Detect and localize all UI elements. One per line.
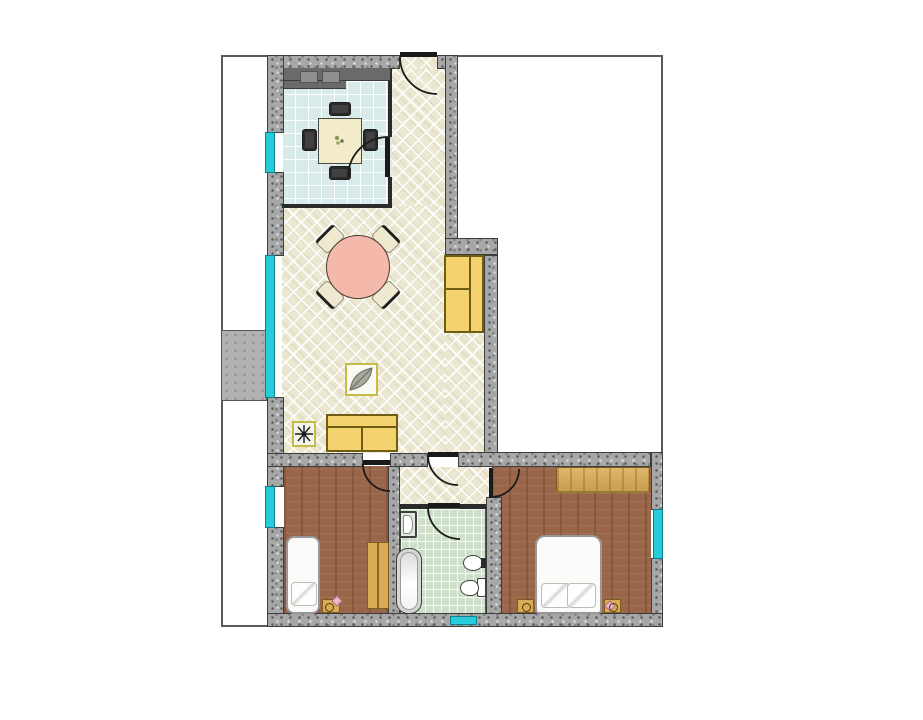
nightstand-lamp-ring	[609, 603, 618, 612]
bedroom-small-window	[265, 486, 275, 528]
cabinet	[444, 255, 484, 333]
cabinet-side-column	[471, 257, 482, 331]
bathtub-basin	[400, 552, 418, 610]
bedroom-small-wardrobe	[367, 542, 389, 609]
double-bed	[535, 535, 602, 614]
round-dining-table	[326, 235, 390, 299]
wall-east-mid	[484, 255, 498, 467]
bedroom-master-nightstand-left	[517, 599, 534, 613]
toilet-bowl	[460, 580, 479, 596]
cabinet-cell-top	[446, 257, 469, 290]
bedroom-master-nightstand-right	[604, 599, 621, 613]
inner-hallway-floor	[400, 467, 492, 507]
wall-bedrooms-top-b	[390, 453, 428, 467]
bedroom-small-nightstand	[322, 599, 340, 613]
nightstand-lamp-ring	[522, 603, 531, 612]
wall-left-4	[267, 527, 284, 627]
wall-decor-star-frame	[292, 421, 316, 447]
sofa-back	[328, 416, 396, 428]
nightstand-lamp-ring	[325, 603, 334, 612]
kitchen-table	[318, 118, 362, 164]
bedroom-master-wardrobe	[556, 467, 650, 493]
kitchen-window	[265, 132, 275, 173]
cabinet-cell-bottom	[446, 290, 469, 331]
kitchen-chair-east	[363, 129, 378, 151]
wall-top-west	[267, 55, 400, 69]
kitchen-stove-module	[322, 71, 340, 83]
single-bed-pillow	[291, 582, 317, 606]
bathroom-wall-top-east	[460, 504, 486, 509]
kitchen-sink-module	[300, 71, 318, 83]
balcony	[221, 330, 267, 401]
double-bed-pillow-left	[541, 583, 570, 608]
wall-left-1	[267, 55, 284, 133]
bathroom-window	[450, 616, 477, 625]
sofa-seat-left	[328, 428, 362, 450]
sofa	[326, 414, 398, 452]
wall-east-step	[445, 238, 498, 255]
living-room-window	[265, 255, 275, 398]
bidet	[463, 555, 483, 571]
wall-left-3	[267, 397, 284, 487]
wall-bedrooms-top-a	[267, 453, 363, 467]
entry-door-threshold	[400, 57, 437, 69]
washbasin	[399, 511, 417, 538]
double-bed-pillow-right	[567, 583, 596, 608]
bidet-wall-mount	[481, 558, 486, 568]
floor-plan	[0, 0, 923, 720]
kitchen-chair-south	[329, 166, 351, 180]
sofa-seats	[328, 428, 396, 450]
wall-bath-bedroom-divider	[486, 497, 502, 614]
kitchen-wall-bottom	[282, 204, 392, 208]
bathtub	[396, 548, 422, 614]
wall-east-upper	[445, 55, 458, 255]
bathroom-wall-top-west	[400, 504, 428, 509]
wall-right-upper	[651, 452, 663, 510]
sofa-seat-right	[362, 428, 396, 450]
wall-left-2	[267, 172, 284, 256]
kitchen-chair-north	[329, 102, 351, 116]
kitchen-chair-west	[302, 129, 317, 151]
wall-bedrooms-top-c	[458, 452, 651, 467]
wall-decor-leaf-frame	[345, 363, 378, 396]
washbasin-bowl	[403, 515, 413, 534]
cabinet-left-cells	[446, 257, 471, 331]
single-bed	[286, 536, 320, 614]
bedroom-master-window	[653, 509, 663, 559]
entry-hall-floor	[392, 68, 445, 208]
